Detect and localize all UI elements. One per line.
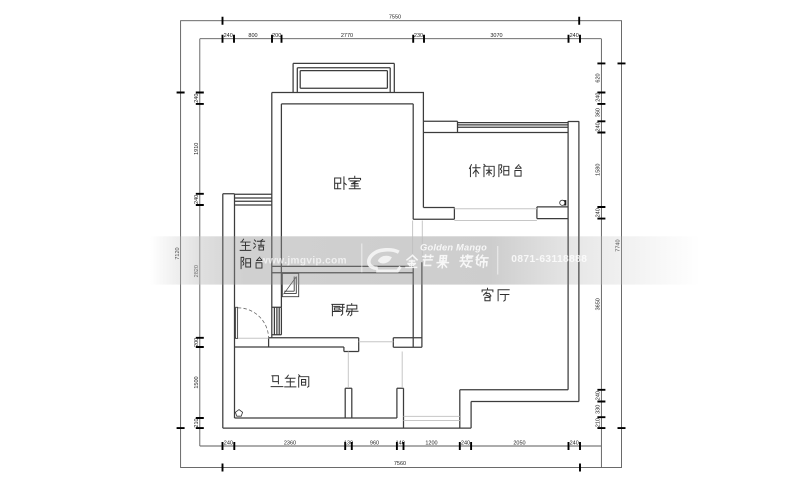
svg-text:210: 210 <box>194 418 200 427</box>
svg-text:2050: 2050 <box>513 440 525 446</box>
svg-text:800: 800 <box>248 33 257 39</box>
svg-text:360: 360 <box>596 108 602 117</box>
svg-text:240: 240 <box>570 440 579 446</box>
svg-text:1200: 1200 <box>425 440 437 446</box>
svg-text:240: 240 <box>570 33 579 39</box>
svg-text:0871-63118888: 0871-63118888 <box>511 254 587 265</box>
svg-text:960: 960 <box>370 440 379 446</box>
svg-text:240: 240 <box>596 391 602 400</box>
svg-text:Golden Mango: Golden Mango <box>420 243 487 253</box>
svg-text:210: 210 <box>596 418 602 427</box>
svg-text:3650: 3650 <box>596 298 602 310</box>
svg-text:240: 240 <box>596 93 602 102</box>
svg-text:2360: 2360 <box>284 440 296 446</box>
svg-text:3070: 3070 <box>490 33 502 39</box>
svg-text:1910: 1910 <box>194 143 200 155</box>
svg-text:240: 240 <box>224 440 233 446</box>
svg-text:330: 330 <box>596 405 602 414</box>
svg-text:1580: 1580 <box>596 164 602 176</box>
svg-text:200: 200 <box>194 338 200 347</box>
svg-text:www.jmgvip.com: www.jmgvip.com <box>259 255 347 266</box>
svg-text:1500: 1500 <box>194 376 200 388</box>
svg-text:240: 240 <box>461 440 470 446</box>
svg-text:7560: 7560 <box>394 461 406 467</box>
svg-text:240: 240 <box>194 195 200 204</box>
svg-text:230: 230 <box>414 33 423 39</box>
svg-text:200: 200 <box>272 33 281 39</box>
svg-text:7550: 7550 <box>389 15 401 21</box>
svg-text:620: 620 <box>596 73 602 82</box>
svg-text:240: 240 <box>224 33 233 39</box>
svg-text:240: 240 <box>596 208 602 217</box>
svg-text:140: 140 <box>396 440 405 446</box>
svg-text:240: 240 <box>596 122 602 131</box>
svg-text:240: 240 <box>194 94 200 103</box>
svg-text:2770: 2770 <box>341 33 353 39</box>
svg-text:130: 130 <box>344 440 353 446</box>
